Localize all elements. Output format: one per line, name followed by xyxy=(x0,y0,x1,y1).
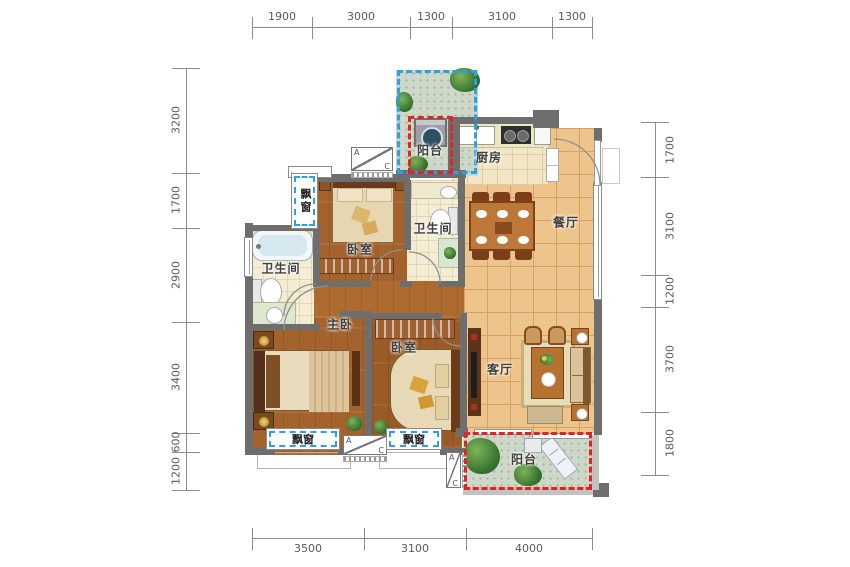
dim-tick xyxy=(641,122,669,123)
dim-value: 1200 xyxy=(170,457,183,485)
dim-tick xyxy=(641,475,669,476)
dim-value: 1300 xyxy=(558,10,586,23)
room-label-balcony-top: 阳台 xyxy=(417,142,443,159)
room-label-dining: 餐厅 xyxy=(553,214,579,231)
door-arcs xyxy=(0,0,850,567)
dim-value: 1200 xyxy=(664,277,677,305)
floor-plan-canvas: 飘窗 飘窗 飘窗 A C A C A C 阳台 厨房 xyxy=(0,0,850,567)
dim-tick xyxy=(410,17,411,39)
dim-tick xyxy=(452,17,453,39)
room-label-bath-left: 卫生间 xyxy=(261,260,300,277)
room-label-bedroom-top: 卧室 xyxy=(347,241,373,258)
dim-tick xyxy=(172,490,200,491)
room-label-master: 主卧 xyxy=(327,316,353,333)
dim-value: 1900 xyxy=(268,10,296,23)
dim-tick xyxy=(641,275,669,276)
dim-value: 1800 xyxy=(664,429,677,457)
dim-tick xyxy=(364,528,365,550)
dim-value: 3500 xyxy=(294,542,322,555)
dim-line-right xyxy=(655,122,656,475)
dim-tick xyxy=(592,528,593,550)
room-label-living: 客厅 xyxy=(487,361,513,378)
dim-value: 4000 xyxy=(515,542,543,555)
dim-value: 3100 xyxy=(664,212,677,240)
dim-tick xyxy=(641,307,669,308)
bay-window-label: 飘窗 xyxy=(403,431,425,447)
dim-tick xyxy=(466,528,467,550)
bedroom-top-door-arc xyxy=(371,250,402,281)
bath-top-door-arc xyxy=(409,252,440,283)
dim-value: 3100 xyxy=(488,10,516,23)
dim-value: 3100 xyxy=(401,542,429,555)
dim-tick xyxy=(172,228,200,229)
dim-tick xyxy=(172,173,200,174)
dim-line-bottom xyxy=(252,538,593,539)
dim-tick xyxy=(312,17,313,39)
bay-window-label: 飘窗 xyxy=(297,188,313,214)
dim-value: 3700 xyxy=(664,345,677,373)
dim-tick xyxy=(172,322,200,323)
room-label-balcony-bottom: 阳台 xyxy=(511,451,537,468)
entry-door-arc xyxy=(554,139,600,185)
dim-value: 3200 xyxy=(170,106,183,134)
room-label-bath-top: 卫生间 xyxy=(413,220,452,237)
dim-tick xyxy=(641,177,669,178)
dim-tick xyxy=(641,412,669,413)
dim-value: 3000 xyxy=(347,10,375,23)
dim-value: 2900 xyxy=(170,261,183,289)
dim-tick xyxy=(172,68,200,69)
dim-tick xyxy=(592,17,593,39)
dim-line-top xyxy=(252,27,593,28)
room-label-kitchen: 厨房 xyxy=(476,149,502,166)
dim-tick xyxy=(252,528,253,550)
dim-tick xyxy=(252,17,253,39)
dim-value: 600 xyxy=(170,432,183,453)
dim-value: 1700 xyxy=(664,136,677,164)
dim-value: 1300 xyxy=(417,10,445,23)
bay-window-label: 飘窗 xyxy=(292,431,314,447)
room-label-bedroom-bottom: 卧室 xyxy=(391,339,417,356)
dim-tick xyxy=(552,17,553,39)
dim-value: 1700 xyxy=(170,186,183,214)
bedroom-bottom-door-arc xyxy=(433,318,461,346)
dim-line-left xyxy=(186,68,187,490)
master-door-arc xyxy=(284,286,328,330)
dim-value: 3400 xyxy=(170,363,183,391)
